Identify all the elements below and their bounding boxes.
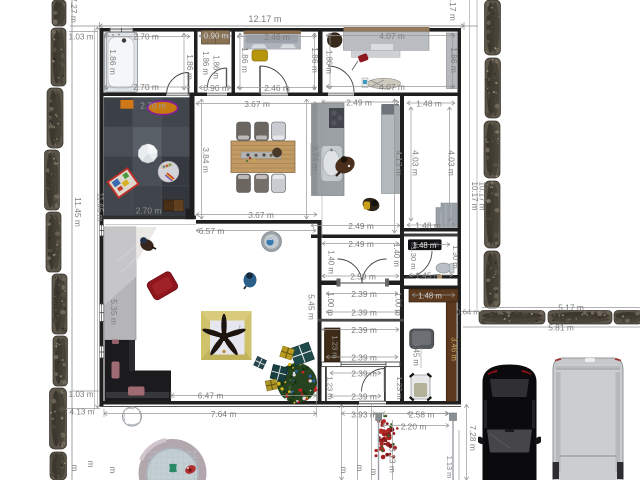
svg-text:7.27 m: 7.27 m xyxy=(69,0,79,23)
svg-text:1.86 m: 1.86 m xyxy=(310,47,320,73)
svg-text:1.03 m: 1.03 m xyxy=(68,390,93,399)
svg-text:4.13 m: 4.13 m xyxy=(394,150,404,176)
svg-text:2.39 m: 2.39 m xyxy=(351,325,377,335)
svg-text:3.84 m: 3.84 m xyxy=(201,147,211,173)
svg-text:0.90 m: 0.90 m xyxy=(204,32,229,41)
svg-text:1.86 m: 1.86 m xyxy=(212,55,221,79)
svg-text:6.47 m: 6.47 m xyxy=(198,391,224,401)
svg-text:3.46 m: 3.46 m xyxy=(450,337,459,361)
svg-text:2.39 m: 2.39 m xyxy=(351,289,377,299)
svg-text:3.13 m: 3.13 m xyxy=(388,447,398,473)
svg-text:2.70 m: 2.70 m xyxy=(136,206,162,216)
svg-text:1.86 m: 1.86 m xyxy=(240,47,250,73)
svg-text:1.30 m: 1.30 m xyxy=(409,246,418,269)
svg-text:5.81 m: 5.81 m xyxy=(548,323,574,333)
svg-text:1.86 m: 1.86 m xyxy=(449,47,459,73)
svg-text:3.67 m: 3.67 m xyxy=(248,210,274,220)
svg-text:11.65 m: 11.65 m xyxy=(96,193,105,222)
svg-text:3.67 m: 3.67 m xyxy=(244,99,270,109)
svg-text:1.03 m: 1.03 m xyxy=(68,33,93,42)
svg-text:1.23 m: 1.23 m xyxy=(331,335,340,358)
svg-text:3.93 m: 3.93 m xyxy=(351,410,377,420)
svg-text:1.48 m: 1.48 m xyxy=(416,99,442,109)
svg-text:m: m xyxy=(369,469,378,476)
svg-text:0.90 m: 0.90 m xyxy=(203,83,229,93)
svg-text:1.23 m: 1.23 m xyxy=(395,376,404,399)
svg-text:2.39 m: 2.39 m xyxy=(351,392,377,402)
svg-text:2.49 m: 2.49 m xyxy=(346,98,372,108)
svg-text:1.86 m: 1.86 m xyxy=(201,51,210,75)
svg-text:10.17 m: 10.17 m xyxy=(478,182,487,211)
svg-text:2.39 m: 2.39 m xyxy=(351,353,377,363)
svg-text:2.39 m: 2.39 m xyxy=(351,308,377,318)
svg-text:1.40 m: 1.40 m xyxy=(327,250,336,274)
svg-text:7.64 m: 7.64 m xyxy=(211,409,237,419)
svg-text:5.45 m: 5.45 m xyxy=(307,294,317,320)
svg-text:4.03 m: 4.03 m xyxy=(411,150,421,176)
svg-text:4.07 m: 4.07 m xyxy=(379,31,405,41)
svg-text:5.17 m: 5.17 m xyxy=(558,303,584,313)
svg-text:4.13 m: 4.13 m xyxy=(69,408,94,417)
svg-text:4.03 m: 4.03 m xyxy=(447,150,457,176)
svg-text:1.48 m: 1.48 m xyxy=(415,221,441,231)
svg-text:m: m xyxy=(355,465,364,472)
svg-text:0.64 m: 0.64 m xyxy=(456,308,479,317)
svg-text:1.40 m: 1.40 m xyxy=(392,243,401,267)
svg-text:4.07 m: 4.07 m xyxy=(379,82,405,92)
svg-text:2.70 m: 2.70 m xyxy=(133,82,159,92)
svg-text:1.30 m: 1.30 m xyxy=(451,245,460,268)
svg-text:7.28 m: 7.28 m xyxy=(468,425,478,451)
svg-text:1.45 m: 1.45 m xyxy=(415,271,441,281)
svg-text:1.48 m: 1.48 m xyxy=(418,292,442,301)
svg-text:1.00 m: 1.00 m xyxy=(326,292,335,316)
svg-text:2.46 m: 2.46 m xyxy=(264,83,290,93)
svg-text:m: m xyxy=(86,461,95,468)
svg-text:2.20 m: 2.20 m xyxy=(401,422,427,432)
svg-text:1.13 m: 1.13 m xyxy=(445,456,454,479)
svg-text:2.58 m: 2.58 m xyxy=(409,410,435,420)
svg-text:2.49 m: 2.49 m xyxy=(348,239,374,249)
svg-text:5.35 m: 5.35 m xyxy=(109,299,119,325)
svg-text:11.45 m: 11.45 m xyxy=(73,197,83,227)
svg-text:2.70 m: 2.70 m xyxy=(140,101,166,111)
svg-text:6.57 m: 6.57 m xyxy=(199,226,225,236)
svg-text:1.86 m: 1.86 m xyxy=(325,50,334,74)
svg-text:2.59 m: 2.59 m xyxy=(350,272,376,282)
svg-text:1.86 m: 1.86 m xyxy=(185,54,195,80)
svg-text:3.74 m: 3.74 m xyxy=(311,145,321,171)
svg-text:m: m xyxy=(339,467,348,474)
svg-text:m: m xyxy=(70,465,79,472)
svg-text:1.00 m: 1.00 m xyxy=(394,292,403,316)
svg-text:2.39 m: 2.39 m xyxy=(351,369,377,379)
svg-text:1.17 m: 1.17 m xyxy=(448,0,458,21)
svg-text:1.23 m: 1.23 m xyxy=(326,376,335,399)
svg-text:1.86 m: 1.86 m xyxy=(108,49,118,75)
svg-text:2.49 m: 2.49 m xyxy=(348,221,374,231)
svg-text:12.17 m: 12.17 m xyxy=(248,14,282,24)
svg-text:2.46 m: 2.46 m xyxy=(264,32,290,42)
svg-text:m: m xyxy=(108,467,117,474)
svg-text:3.45 m: 3.45 m xyxy=(412,342,421,366)
svg-text:2.70 m: 2.70 m xyxy=(133,32,159,42)
